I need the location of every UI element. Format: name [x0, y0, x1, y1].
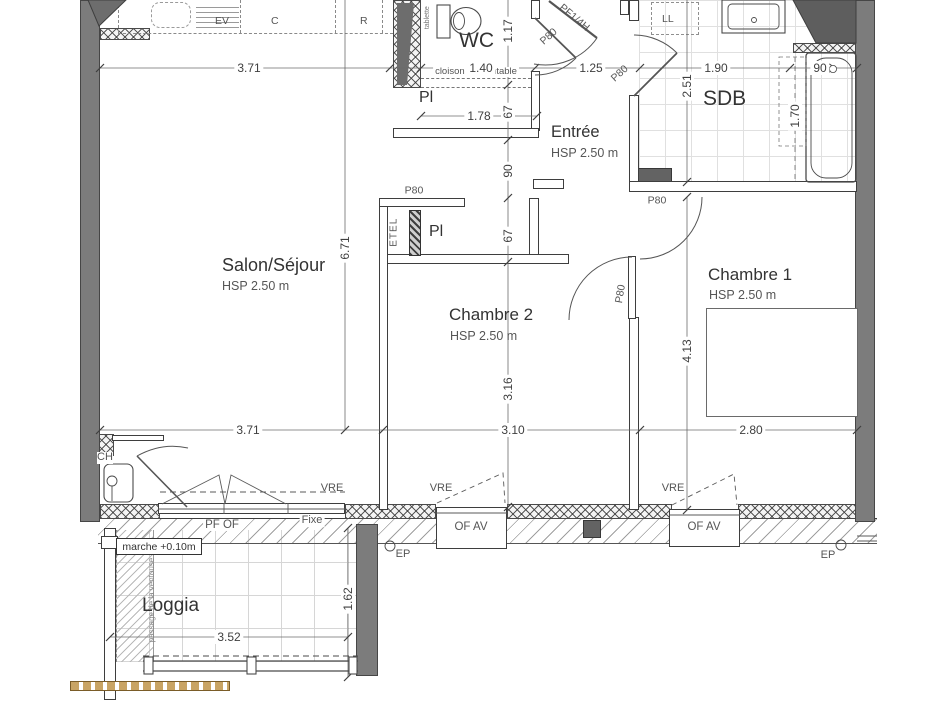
ev-label: EV: [215, 16, 229, 27]
placard2-label: Pl: [429, 224, 443, 241]
dim-top-5: 90: [810, 61, 829, 75]
dim-chambre2-depth: 3.16: [501, 374, 515, 403]
dim-top-2: 1.40: [466, 61, 495, 75]
p80-chambre1-label: P80: [648, 195, 667, 206]
pfof-label: PF OF: [203, 519, 241, 531]
dim-sdb-height: 2.51: [680, 71, 694, 100]
entree-label: Entrée: [551, 124, 600, 141]
dim-top-1: 3.71: [234, 61, 263, 75]
c-label: C: [271, 16, 279, 27]
vre3-label: VRE: [662, 483, 685, 495]
dim-wc-depth: 1.17: [501, 16, 515, 45]
dim-corridor: 90: [501, 161, 515, 180]
dim-loggia-depth: 1.62: [341, 584, 355, 613]
ch-label: CH: [97, 452, 113, 464]
etel-label: ETEL: [389, 218, 400, 247]
dim-bottom-2: 3.10: [498, 423, 527, 437]
dim-pl2-depth: 67: [501, 226, 515, 245]
chambre2-hsp: HSP 2.50 m: [450, 330, 517, 343]
ep2-label: EP: [821, 550, 836, 562]
chambre1-hsp: HSP 2.50 m: [709, 289, 776, 302]
entree-hsp: HSP 2.50 m: [551, 147, 618, 160]
sdb-label: SDB: [703, 88, 746, 110]
dim-chambre1-height: 4.13: [680, 336, 694, 365]
vre2-label: VRE: [430, 483, 453, 495]
salon-label: Salon/Séjour: [222, 256, 325, 275]
wc-label: WC: [459, 30, 494, 52]
dim-loggia-width: 3.52: [214, 630, 243, 644]
salon-hsp: HSP 2.50 m: [222, 280, 289, 293]
r-label: R: [360, 16, 368, 27]
dimension-ticks: [96, 64, 861, 681]
ep1-label: EP: [396, 549, 411, 561]
vre1-label: VRE: [321, 483, 344, 495]
ll-label: LL: [662, 14, 674, 25]
window-symbols: [158, 473, 877, 541]
p80-etel-label: P80: [405, 185, 424, 196]
dim-bottom-3: 2.80: [736, 423, 765, 437]
ventouse-note: passage de la ventouse: [148, 558, 156, 643]
dim-top-3: 1.25: [576, 61, 605, 75]
ofav2-label: OF AV: [687, 521, 720, 533]
tablette-label: tablette: [424, 6, 431, 29]
fixe-label: Fixe: [300, 515, 325, 527]
dim-bath-length: 1.70: [788, 101, 802, 130]
dim-bottom-1: 3.71: [233, 423, 262, 437]
dim-salon-height: 6.71: [338, 233, 352, 262]
dim-top-4: 1.90: [701, 61, 730, 75]
chambre2-label: Chambre 2: [449, 306, 533, 324]
chambre1-label: Chambre 1: [708, 266, 792, 284]
floor-plan: Salon/Séjour HSP 2.50 m Entrée HSP 2.50 …: [0, 0, 940, 705]
placard1-label: Pl: [419, 90, 433, 107]
marche-note: marche +0.10m: [116, 538, 202, 555]
dim-pl1-depth: 67: [501, 102, 515, 121]
dim-pl-width: 1.78: [464, 109, 493, 123]
ofav1-label: OF AV: [454, 521, 487, 533]
